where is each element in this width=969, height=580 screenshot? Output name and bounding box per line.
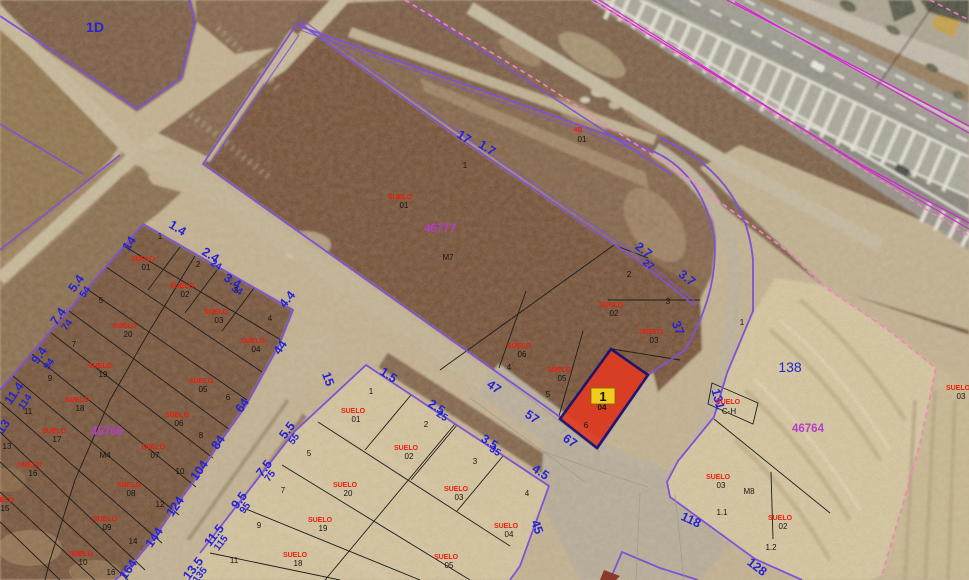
svg-text:SUELO: SUELO (507, 343, 532, 350)
svg-text:14: 14 (129, 537, 138, 546)
svg-text:SUELO: SUELO (388, 194, 413, 201)
svg-text:20: 20 (344, 489, 353, 498)
svg-text:5: 5 (99, 296, 104, 305)
svg-text:M8: M8 (743, 487, 755, 496)
svg-text:45766: 45766 (91, 426, 123, 438)
svg-text:4: 4 (507, 363, 512, 372)
svg-text:12: 12 (156, 500, 165, 509)
svg-text:20: 20 (124, 330, 133, 339)
svg-text:01: 01 (142, 263, 151, 272)
svg-text:17: 17 (53, 435, 62, 444)
svg-text:3: 3 (666, 297, 671, 306)
svg-text:SUELO: SUELO (69, 551, 94, 558)
svg-text:46777: 46777 (424, 223, 456, 235)
svg-text:03: 03 (215, 316, 224, 325)
svg-text:9: 9 (48, 374, 53, 383)
svg-text:07: 07 (151, 451, 160, 460)
svg-text:5: 5 (307, 449, 312, 458)
svg-text:2: 2 (196, 260, 201, 269)
svg-text:SUELO: SUELO (494, 523, 519, 530)
svg-text:6: 6 (584, 421, 589, 430)
svg-text:05: 05 (445, 561, 454, 570)
svg-text:6: 6 (226, 393, 231, 402)
svg-text:46764: 46764 (792, 423, 825, 435)
svg-text:SUELO: SUELO (0, 497, 15, 504)
svg-text:1.2: 1.2 (765, 543, 777, 552)
svg-text:C-H: C-H (722, 407, 736, 416)
svg-text:19: 19 (99, 370, 108, 379)
svg-text:SUELO: SUELO (341, 408, 366, 415)
svg-text:08: 08 (127, 489, 136, 498)
svg-text:SUELO: SUELO (308, 517, 333, 524)
svg-text:06: 06 (175, 419, 184, 428)
svg-text:SUELO: SUELO (42, 428, 67, 435)
svg-text:10: 10 (176, 467, 185, 476)
svg-text:SUELO: SUELO (547, 367, 572, 374)
svg-text:SUELO: SUELO (241, 338, 266, 345)
svg-text:7: 7 (281, 486, 286, 495)
svg-text:1: 1 (599, 389, 606, 404)
svg-text:3: 3 (473, 457, 478, 466)
svg-text:04: 04 (252, 345, 261, 354)
svg-text:SUELO: SUELO (117, 482, 142, 489)
svg-text:9: 9 (257, 521, 262, 530)
svg-text:02: 02 (779, 522, 788, 531)
svg-text:10: 10 (79, 558, 88, 567)
svg-text:SUELO: SUELO (283, 552, 308, 559)
svg-text:01: 01 (352, 415, 361, 424)
svg-text:4: 4 (268, 314, 273, 323)
svg-text:18: 18 (76, 404, 85, 413)
svg-text:13: 13 (3, 442, 12, 451)
svg-text:SUELO: SUELO (434, 554, 459, 561)
svg-text:SUELO: SUELO (706, 474, 731, 481)
svg-text:SUELO: SUELO (88, 363, 113, 370)
svg-text:02: 02 (181, 290, 190, 299)
svg-text:2: 2 (627, 270, 632, 279)
svg-text:SUELO: SUELO (141, 444, 166, 451)
svg-text:5: 5 (546, 390, 551, 399)
svg-text:02: 02 (610, 309, 619, 318)
svg-text:1.1: 1.1 (716, 508, 728, 517)
svg-text:15: 15 (1, 504, 10, 513)
svg-text:SUELO: SUELO (165, 412, 190, 419)
svg-text:SUELO: SUELO (599, 302, 624, 309)
svg-text:138: 138 (778, 359, 802, 375)
svg-text:16: 16 (29, 469, 38, 478)
svg-text:8: 8 (199, 431, 204, 440)
svg-text:4B: 4B (574, 127, 583, 134)
svg-text:04: 04 (505, 530, 514, 539)
svg-text:SUELO: SUELO (189, 378, 214, 385)
svg-text:SUELO: SUELO (716, 399, 741, 406)
svg-text:1: 1 (463, 161, 468, 170)
svg-text:1: 1 (740, 318, 745, 327)
svg-text:03: 03 (717, 481, 726, 490)
svg-text:M4: M4 (99, 451, 111, 460)
svg-text:01: 01 (400, 201, 409, 210)
svg-text:3: 3 (234, 286, 239, 295)
svg-text:SUELO: SUELO (18, 462, 43, 469)
svg-text:05: 05 (558, 374, 567, 383)
svg-text:1D: 1D (86, 19, 104, 35)
svg-text:SUELO: SUELO (639, 329, 664, 336)
svg-text:SUELO: SUELO (444, 486, 469, 493)
svg-text:01: 01 (578, 135, 587, 144)
svg-text:1: 1 (158, 232, 163, 241)
svg-text:16: 16 (107, 568, 116, 577)
svg-text:4: 4 (525, 489, 530, 498)
svg-text:SUELO: SUELO (333, 482, 358, 489)
svg-text:2: 2 (424, 420, 429, 429)
svg-text:SUELO: SUELO (394, 445, 419, 452)
svg-text:SUELO: SUELO (113, 323, 138, 330)
svg-text:19: 19 (319, 524, 328, 533)
svg-text:09: 09 (103, 523, 112, 532)
svg-text:06: 06 (518, 350, 527, 359)
svg-text:SUELO: SUELO (768, 515, 793, 522)
svg-text:02: 02 (405, 452, 414, 461)
svg-text:11: 11 (24, 407, 33, 416)
svg-text:7: 7 (72, 340, 77, 349)
svg-text:SUELO: SUELO (131, 256, 156, 263)
svg-text:03: 03 (650, 336, 659, 345)
svg-text:03: 03 (957, 392, 966, 401)
svg-text:SUELO: SUELO (170, 283, 195, 290)
svg-text:18: 18 (294, 559, 303, 568)
svg-text:03: 03 (455, 493, 464, 502)
svg-text:SUELO: SUELO (93, 516, 118, 523)
svg-text:11: 11 (230, 556, 239, 565)
svg-text:1: 1 (369, 387, 374, 396)
svg-text:SUELO: SUELO (65, 397, 90, 404)
svg-text:05: 05 (199, 385, 208, 394)
svg-text:SUELO: SUELO (204, 309, 229, 316)
svg-text:SUELO: SUELO (946, 385, 969, 392)
svg-text:M7: M7 (442, 253, 454, 262)
